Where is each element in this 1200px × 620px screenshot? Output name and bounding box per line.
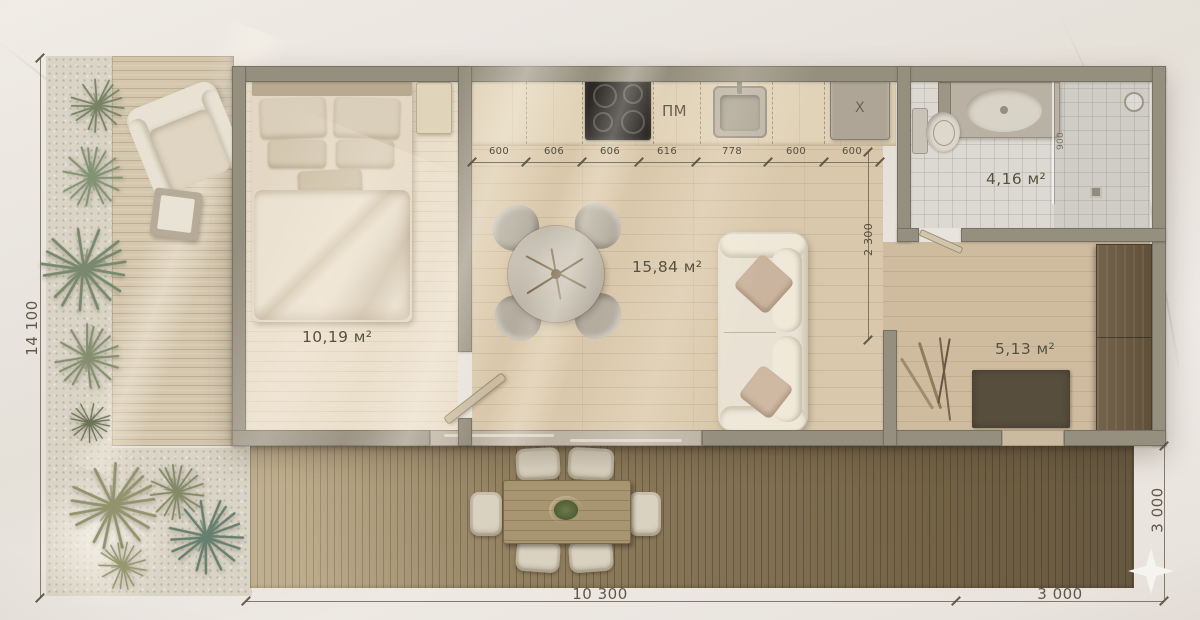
burner	[593, 112, 613, 132]
toilet-bowl	[926, 112, 960, 152]
cabinet-dim-label: 600	[774, 146, 818, 157]
shower-head-icon	[1124, 92, 1144, 112]
cabinet-separator	[700, 82, 701, 144]
table-plant-icon	[549, 496, 583, 524]
vanity-sink	[966, 88, 1042, 132]
entry-door-threshold	[1002, 430, 1064, 446]
cabinet-separator	[772, 82, 773, 144]
wall-bedroom-divider-stub	[458, 418, 472, 446]
pillow	[333, 97, 400, 139]
sink-basin	[720, 95, 760, 131]
blanket	[254, 190, 410, 320]
dishwasher-label: ПМ	[662, 102, 687, 120]
cabinet-dim-label: 606	[532, 146, 576, 157]
cabinet-dim-line	[472, 162, 880, 163]
burner	[621, 110, 645, 134]
cabinet-dim-label: 606	[588, 146, 632, 157]
sink-drain	[1000, 106, 1008, 114]
cabinet-dim-label: 778	[710, 146, 754, 157]
shower-dim-label: 900	[1046, 128, 1076, 147]
pillow	[336, 140, 394, 168]
right-deck-dim-label: 3 000	[1128, 500, 1188, 519]
cabinet-separator	[824, 82, 825, 144]
wall-bottom-right	[1064, 430, 1166, 446]
compass-star-icon	[1128, 548, 1174, 594]
floor-plan: ПМ X	[0, 0, 1200, 620]
burner	[623, 84, 643, 104]
pillow	[259, 97, 326, 139]
outdoor-chair	[470, 492, 502, 536]
area-label-living: 15,84 м²	[632, 258, 702, 276]
cabinet-separator	[653, 82, 654, 144]
boiler-label: X	[855, 100, 865, 116]
cooktop	[585, 76, 651, 140]
bottom-deck-dim-label: 3 000	[1000, 585, 1120, 603]
kitchen-depth-dim-label: 2 300	[842, 228, 894, 247]
pillow	[268, 140, 326, 168]
driftwood-decor	[893, 330, 965, 434]
shower-drain	[1090, 186, 1102, 198]
doormat	[972, 370, 1070, 428]
wall-bottom-mid	[702, 430, 1002, 446]
wardrobe	[1096, 244, 1152, 432]
wall-right	[1152, 66, 1166, 446]
toilet-seat	[933, 120, 955, 146]
dining-table	[508, 226, 604, 322]
nightstand	[416, 82, 452, 134]
side-table	[149, 187, 202, 240]
total-height-dim-label: 14 100	[2, 318, 62, 337]
wall-left	[232, 66, 246, 446]
wall-bottom	[232, 430, 430, 446]
wall-bedroom-divider	[458, 66, 472, 352]
door-panel	[570, 439, 682, 442]
cabinet-dim-label: 600	[477, 146, 521, 157]
burner	[593, 84, 617, 108]
wall-bathroom-bottom-b	[961, 228, 1166, 242]
cabinet-dim-label: 616	[645, 146, 689, 157]
area-label-bathroom: 4,16 м²	[986, 170, 1046, 188]
driftwood-branch	[900, 357, 934, 409]
outdoor-chair	[629, 492, 661, 536]
cabinet-separator	[526, 82, 527, 144]
wall-entry-partition	[883, 330, 897, 446]
wall-bathroom-left	[897, 66, 911, 242]
wall-top	[232, 66, 1166, 82]
plant-icon	[160, 490, 253, 583]
cabinet-separator	[582, 82, 583, 144]
outdoor-chair	[567, 447, 615, 481]
deck-terrace-main	[250, 446, 1134, 588]
wall-bathroom-bottom-a	[897, 228, 919, 242]
area-label-entry: 5,13 м²	[995, 340, 1055, 358]
bottom-house-dim-label: 10 300	[540, 585, 660, 603]
sofa-seat-line	[724, 332, 776, 333]
twig-knot	[551, 269, 561, 279]
area-label-bedroom: 10,19 м²	[302, 328, 372, 346]
kitchen-sink	[713, 86, 767, 138]
boiler-unit: X	[830, 76, 890, 140]
outdoor-chair	[515, 447, 561, 481]
sofa	[718, 232, 808, 432]
wardrobe-divider	[1097, 337, 1151, 338]
side-table-top	[157, 195, 195, 233]
bed	[252, 78, 412, 322]
